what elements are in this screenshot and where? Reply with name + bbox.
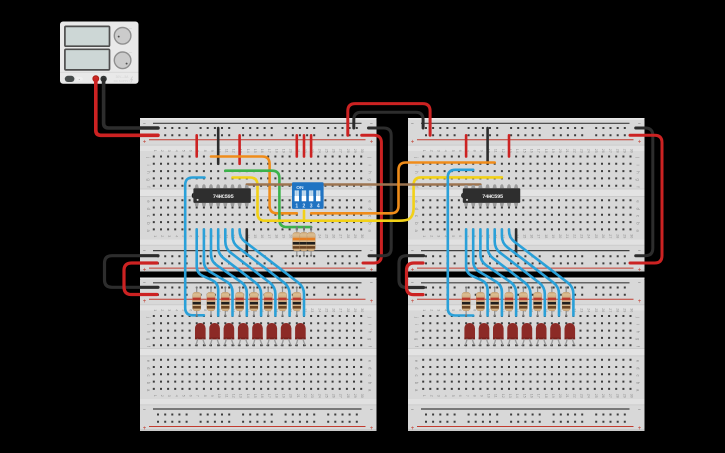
svg-text:30: 30 — [630, 149, 634, 153]
svg-text:i: i — [636, 324, 641, 325]
svg-text:j: j — [636, 156, 641, 158]
svg-text:27: 27 — [608, 394, 612, 398]
svg-text:8: 8 — [203, 395, 207, 397]
svg-text:28: 28 — [615, 308, 619, 312]
svg-text:11: 11 — [224, 394, 228, 398]
svg-text:26: 26 — [332, 394, 336, 398]
svg-text:11: 11 — [224, 149, 228, 153]
svg-text:+: + — [638, 139, 642, 145]
svg-text:3: 3 — [167, 235, 171, 237]
svg-text:3: 3 — [437, 150, 441, 152]
svg-text:+: + — [411, 426, 415, 432]
svg-text:17: 17 — [537, 149, 541, 153]
svg-text:−: − — [143, 248, 146, 254]
svg-text:25: 25 — [324, 234, 328, 238]
svg-text:i: i — [146, 165, 151, 166]
svg-text:−: − — [370, 281, 373, 287]
svg-text:29: 29 — [353, 308, 357, 312]
svg-text:5: 5 — [451, 150, 455, 152]
svg-text:j: j — [368, 156, 373, 158]
svg-text:19: 19 — [551, 394, 555, 398]
svg-text:1: 1 — [422, 150, 426, 152]
svg-text:i: i — [636, 165, 641, 166]
svg-text:−: − — [411, 407, 414, 413]
svg-text:i: i — [414, 165, 419, 166]
svg-text:24: 24 — [317, 149, 321, 153]
svg-text:−: − — [370, 407, 373, 413]
svg-text:9: 9 — [210, 395, 214, 397]
svg-text:30: 30 — [630, 308, 634, 312]
svg-text:27: 27 — [608, 234, 612, 238]
svg-text:1: 1 — [422, 235, 426, 237]
svg-text:28: 28 — [346, 234, 350, 238]
svg-text:6: 6 — [189, 235, 193, 237]
svg-text:29: 29 — [353, 234, 357, 238]
svg-text:19: 19 — [282, 149, 286, 153]
svg-text:4: 4 — [174, 235, 178, 237]
svg-text:28: 28 — [615, 149, 619, 153]
svg-text:74HC595: 74HC595 — [482, 193, 504, 200]
svg-text:23: 23 — [580, 308, 584, 312]
svg-text:18: 18 — [544, 149, 548, 153]
svg-text:30: 30 — [360, 234, 364, 238]
svg-text:18: 18 — [544, 394, 548, 398]
svg-text:21: 21 — [565, 394, 569, 398]
svg-text:26: 26 — [601, 308, 605, 312]
svg-text:20: 20 — [289, 394, 293, 398]
svg-text:+: + — [411, 268, 415, 274]
svg-text:4: 4 — [174, 150, 178, 152]
svg-text:28: 28 — [615, 234, 619, 238]
svg-text:−: − — [638, 281, 641, 287]
svg-text:25: 25 — [594, 394, 598, 398]
svg-text:25: 25 — [324, 394, 328, 398]
svg-text:30: 30 — [360, 394, 364, 398]
svg-text:28: 28 — [346, 149, 350, 153]
svg-text:−: − — [411, 121, 414, 127]
svg-text:23: 23 — [310, 394, 314, 398]
svg-text:6: 6 — [458, 309, 462, 311]
svg-text:24: 24 — [587, 234, 591, 238]
svg-text:ON: ON — [296, 185, 304, 191]
svg-text:26: 26 — [601, 234, 605, 238]
svg-text:c: c — [146, 375, 151, 377]
svg-text:+: + — [370, 299, 374, 305]
svg-text:5: 5 — [451, 395, 455, 397]
svg-text:+: + — [411, 139, 415, 145]
svg-text:12: 12 — [501, 394, 505, 398]
svg-text:29: 29 — [353, 394, 357, 398]
svg-text:c: c — [368, 215, 373, 217]
svg-text:21: 21 — [565, 149, 569, 153]
svg-text:25: 25 — [324, 308, 328, 312]
svg-text:30: 30 — [630, 394, 634, 398]
svg-text:2: 2 — [429, 309, 433, 311]
svg-text:17: 17 — [267, 394, 271, 398]
svg-text:3: 3 — [437, 309, 441, 311]
svg-text:27: 27 — [339, 394, 343, 398]
svg-text:22: 22 — [572, 234, 576, 238]
svg-text:+: + — [370, 268, 374, 274]
svg-text:3: 3 — [437, 235, 441, 237]
svg-text:14: 14 — [246, 149, 250, 153]
svg-text:4: 4 — [317, 203, 320, 209]
svg-text:1: 1 — [153, 235, 157, 237]
svg-text:20: 20 — [558, 394, 562, 398]
svg-text:1: 1 — [153, 309, 157, 311]
svg-text:1: 1 — [295, 203, 298, 209]
svg-text:14: 14 — [515, 394, 519, 398]
svg-text:4: 4 — [174, 395, 178, 397]
svg-text:23: 23 — [580, 394, 584, 398]
svg-text:29: 29 — [622, 394, 626, 398]
svg-text:+: + — [411, 299, 415, 305]
svg-text:2: 2 — [429, 395, 433, 397]
svg-text:c: c — [414, 375, 419, 377]
svg-text:−: − — [411, 248, 414, 254]
svg-text:23: 23 — [580, 234, 584, 238]
svg-text:j: j — [414, 316, 419, 318]
svg-text:16: 16 — [260, 234, 264, 238]
svg-text:14: 14 — [246, 394, 250, 398]
svg-text:3: 3 — [167, 395, 171, 397]
svg-text:30: 30 — [630, 234, 634, 238]
svg-text:i: i — [414, 324, 419, 325]
svg-text:j: j — [146, 156, 151, 158]
svg-text:27: 27 — [339, 149, 343, 153]
svg-text:4: 4 — [444, 150, 448, 152]
svg-text:17: 17 — [537, 394, 541, 398]
svg-text:12: 12 — [231, 149, 235, 153]
svg-text:3: 3 — [167, 150, 171, 152]
svg-text:8: 8 — [203, 150, 207, 152]
svg-text:7: 7 — [465, 395, 469, 397]
svg-text:27: 27 — [339, 234, 343, 238]
svg-text:29: 29 — [622, 149, 626, 153]
svg-text:18: 18 — [274, 234, 278, 238]
svg-text:11: 11 — [494, 394, 498, 398]
svg-text:24: 24 — [587, 308, 591, 312]
svg-text:8: 8 — [203, 309, 207, 311]
svg-text:5: 5 — [181, 395, 185, 397]
svg-text:17: 17 — [267, 234, 271, 238]
svg-text:15: 15 — [522, 234, 526, 238]
svg-text:2: 2 — [160, 395, 164, 397]
svg-text:29: 29 — [622, 308, 626, 312]
svg-text:16: 16 — [529, 394, 533, 398]
svg-text:25: 25 — [594, 149, 598, 153]
svg-text:20: 20 — [558, 234, 562, 238]
svg-text:i: i — [368, 165, 373, 166]
svg-text:+: + — [638, 268, 642, 274]
svg-text:2: 2 — [429, 235, 433, 237]
svg-text:6: 6 — [458, 395, 462, 397]
svg-text:2: 2 — [160, 150, 164, 152]
svg-text:j: j — [636, 316, 641, 318]
svg-text:29: 29 — [622, 234, 626, 238]
svg-text:9: 9 — [479, 395, 483, 397]
svg-text:−: − — [370, 121, 373, 127]
svg-text:i: i — [368, 324, 373, 325]
svg-text:j: j — [414, 156, 419, 158]
svg-text:7: 7 — [196, 395, 200, 397]
svg-text:27: 27 — [608, 149, 612, 153]
svg-text:20: 20 — [289, 234, 293, 238]
svg-text:c: c — [146, 215, 151, 217]
svg-text:22: 22 — [572, 149, 576, 153]
svg-text:15: 15 — [253, 149, 257, 153]
svg-text:27: 27 — [608, 308, 612, 312]
svg-text:27: 27 — [339, 308, 343, 312]
svg-text:15: 15 — [522, 394, 526, 398]
svg-text:23: 23 — [310, 308, 314, 312]
svg-text:+: + — [143, 426, 147, 432]
svg-text:4: 4 — [174, 309, 178, 311]
svg-text:6: 6 — [189, 150, 193, 152]
svg-text:8: 8 — [472, 309, 476, 311]
svg-text:j: j — [146, 316, 151, 318]
svg-text:1: 1 — [153, 150, 157, 152]
svg-text:22: 22 — [303, 394, 307, 398]
svg-text:−: − — [370, 248, 373, 254]
svg-text:⋯: ⋯ — [129, 51, 132, 55]
svg-text:26: 26 — [332, 308, 336, 312]
svg-text:6: 6 — [458, 235, 462, 237]
svg-text:20: 20 — [558, 149, 562, 153]
svg-text:11: 11 — [494, 149, 498, 153]
svg-text:10: 10 — [487, 394, 491, 398]
svg-text:5: 5 — [451, 309, 455, 311]
svg-text:c: c — [636, 215, 641, 217]
svg-text:+: + — [143, 268, 147, 274]
svg-text:−: − — [143, 407, 146, 413]
svg-text:16: 16 — [529, 149, 533, 153]
svg-text:10: 10 — [217, 394, 221, 398]
svg-text:24: 24 — [317, 308, 321, 312]
svg-text:21: 21 — [565, 234, 569, 238]
svg-text:28: 28 — [615, 394, 619, 398]
svg-text:24: 24 — [587, 149, 591, 153]
svg-text:+: + — [370, 426, 374, 432]
svg-text:c: c — [636, 375, 641, 377]
svg-text:15: 15 — [253, 234, 257, 238]
svg-text:21: 21 — [296, 394, 300, 398]
svg-text:3: 3 — [437, 395, 441, 397]
svg-text:6: 6 — [189, 309, 193, 311]
svg-text:c: c — [414, 215, 419, 217]
svg-text:3: 3 — [310, 203, 313, 209]
svg-text:13: 13 — [508, 394, 512, 398]
svg-text:5: 5 — [181, 150, 185, 152]
svg-text:23: 23 — [580, 149, 584, 153]
svg-text:19: 19 — [551, 149, 555, 153]
svg-text:+: + — [143, 139, 147, 145]
svg-text:17: 17 — [267, 149, 271, 153]
svg-text:18: 18 — [274, 394, 278, 398]
svg-text:14: 14 — [515, 149, 519, 153]
svg-text:+: + — [370, 139, 374, 145]
svg-text:20: 20 — [289, 149, 293, 153]
svg-text:22: 22 — [572, 394, 576, 398]
svg-text:+: + — [143, 299, 147, 305]
svg-text:19: 19 — [282, 394, 286, 398]
svg-text:DC SUPPLY: DC SUPPLY — [114, 79, 131, 83]
svg-text:−: − — [638, 121, 641, 127]
svg-text:24: 24 — [587, 394, 591, 398]
svg-text:74HC595: 74HC595 — [213, 193, 235, 200]
svg-text:12: 12 — [231, 394, 235, 398]
svg-text:−: − — [411, 281, 414, 287]
svg-text:26: 26 — [332, 234, 336, 238]
svg-text:2: 2 — [303, 203, 306, 209]
svg-text:5: 5 — [451, 235, 455, 237]
svg-text:15: 15 — [522, 149, 526, 153]
svg-text:19: 19 — [551, 234, 555, 238]
svg-text:+: + — [638, 299, 642, 305]
svg-text:13: 13 — [239, 394, 243, 398]
svg-text:25: 25 — [594, 234, 598, 238]
svg-text:12: 12 — [501, 149, 505, 153]
svg-text:16: 16 — [529, 234, 533, 238]
svg-text:2: 2 — [160, 235, 164, 237]
svg-text:30: 30 — [360, 308, 364, 312]
svg-text:6: 6 — [458, 150, 462, 152]
svg-text:1: 1 — [153, 395, 157, 397]
svg-text:19: 19 — [282, 234, 286, 238]
svg-text:9: 9 — [210, 150, 214, 152]
svg-text:18: 18 — [274, 149, 278, 153]
svg-text:j: j — [368, 316, 373, 318]
svg-text:18: 18 — [544, 234, 548, 238]
svg-text:25: 25 — [324, 149, 328, 153]
svg-text:i: i — [146, 324, 151, 325]
svg-text:8: 8 — [472, 150, 476, 152]
svg-text:6: 6 — [189, 395, 193, 397]
svg-text:c: c — [368, 375, 373, 377]
svg-text:−: − — [638, 407, 641, 413]
svg-text:8: 8 — [472, 395, 476, 397]
svg-text:25: 25 — [594, 308, 598, 312]
svg-text:28: 28 — [346, 308, 350, 312]
svg-text:1: 1 — [422, 395, 426, 397]
svg-text:+: + — [638, 426, 642, 432]
svg-text:1: 1 — [422, 309, 426, 311]
svg-text:26: 26 — [601, 394, 605, 398]
svg-text:29: 29 — [353, 149, 357, 153]
svg-text:24: 24 — [317, 394, 321, 398]
svg-text:4: 4 — [444, 395, 448, 397]
svg-text:2: 2 — [160, 309, 164, 311]
svg-text:3: 3 — [167, 309, 171, 311]
svg-text:9: 9 — [479, 150, 483, 152]
svg-text:16: 16 — [260, 149, 264, 153]
svg-text:16: 16 — [260, 394, 264, 398]
svg-text:⋯: ⋯ — [129, 26, 132, 30]
svg-text:17: 17 — [537, 234, 541, 238]
svg-text:24: 24 — [317, 234, 321, 238]
svg-text:30: 30 — [360, 149, 364, 153]
svg-text:−: − — [638, 248, 641, 254]
svg-text:28: 28 — [346, 394, 350, 398]
svg-text:26: 26 — [601, 149, 605, 153]
svg-text:15: 15 — [253, 394, 257, 398]
svg-text:26: 26 — [332, 149, 336, 153]
svg-text:2: 2 — [429, 150, 433, 152]
